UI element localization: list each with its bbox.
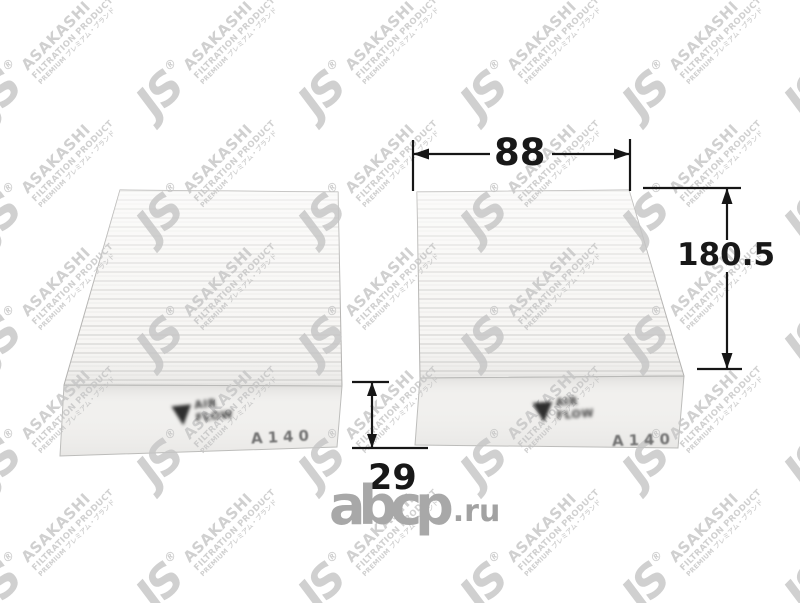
registered-mark-icon: ® bbox=[162, 55, 179, 75]
brand-watermark-tile: JS® ASAKASHI FILTRATION PRODUCT PREMIUM … bbox=[761, 204, 800, 388]
brand-tagline-2: PREMIUM プレミアム・ブランド bbox=[200, 495, 284, 579]
brand-tagline-2: PREMIUM プレミアム・ブランド bbox=[38, 3, 122, 87]
js-logo: JS® bbox=[0, 177, 34, 251]
js-logo: JS® bbox=[0, 300, 34, 374]
brand-tagline-2: PREMIUM プレミアム・ブランド bbox=[362, 126, 446, 210]
registered-mark-icon: ® bbox=[648, 178, 665, 198]
dimension-thickness-arrows bbox=[367, 382, 377, 448]
js-logo-text: JS bbox=[0, 182, 28, 253]
js-logo: JS® bbox=[0, 423, 34, 497]
js-logo: JS® bbox=[618, 54, 683, 128]
registered-mark-icon: ® bbox=[0, 547, 17, 567]
brand-tagline-1: FILTRATION PRODUCT bbox=[30, 488, 115, 573]
brand-watermark-tile: JS® ASAKASHI FILTRATION PRODUCT PREMIUM … bbox=[275, 204, 459, 388]
brand-tagline-1: FILTRATION PRODUCT bbox=[30, 365, 115, 450]
js-logo-text: JS bbox=[129, 428, 190, 499]
js-logo-text: JS bbox=[0, 305, 28, 376]
registered-mark-icon: ® bbox=[324, 424, 341, 444]
js-logo-text: JS bbox=[777, 59, 800, 130]
brand-tagline-2: PREMIUM プレミアム・ブランド bbox=[686, 372, 770, 456]
brand-tagline-1: FILTRATION PRODUCT bbox=[192, 119, 277, 204]
brand-text-block: ASAKASHI FILTRATION PRODUCT PREMIUM プレミア… bbox=[504, 229, 608, 333]
js-logo: JS® bbox=[780, 54, 800, 128]
brand-tagline-2: PREMIUM プレミアム・ブランド bbox=[200, 3, 284, 87]
js-logo-text: JS bbox=[291, 305, 352, 376]
air-flow-arrow-icon: ▼ bbox=[171, 400, 194, 428]
brand-tagline-1: FILTRATION PRODUCT bbox=[678, 488, 763, 573]
brand-tagline-2: PREMIUM プレミアム・ブランド bbox=[38, 372, 122, 456]
brand-tagline-2: PREMIUM プレミアム・ブランド bbox=[38, 126, 122, 210]
brand-watermark-tile: JS® ASAKASHI FILTRATION PRODUCT PREMIUM … bbox=[113, 450, 297, 603]
js-logo-text: JS bbox=[777, 182, 800, 253]
js-logo-text: JS bbox=[0, 428, 28, 499]
brand-watermark-tile: JS® ASAKASHI FILTRATION PRODUCT PREMIUM … bbox=[0, 327, 135, 511]
brand-text-block: ASAKASHI FILTRATION PRODUCT PREMIUM プレミア… bbox=[666, 0, 770, 87]
js-logo: JS® bbox=[456, 177, 521, 251]
brand-name: ASAKASHI bbox=[342, 229, 433, 320]
js-logo: JS® bbox=[132, 54, 197, 128]
brand-tagline-2: PREMIUM プレミアム・ブランド bbox=[524, 495, 608, 579]
brand-tagline-1: FILTRATION PRODUCT bbox=[516, 0, 601, 81]
brand-name: ASAKASHI bbox=[666, 352, 757, 443]
site-watermark: abcp .ru bbox=[329, 482, 500, 531]
brand-tagline-1: FILTRATION PRODUCT bbox=[678, 119, 763, 204]
brand-name: ASAKASHI bbox=[18, 229, 109, 320]
brand-name: ASAKASHI bbox=[504, 0, 595, 74]
brand-watermark-tile: JS® ASAKASHI FILTRATION PRODUCT PREMIUM … bbox=[599, 327, 783, 511]
air-flow-label: AIR FLOW bbox=[555, 393, 613, 422]
brand-tagline-1: FILTRATION PRODUCT bbox=[30, 0, 115, 81]
registered-mark-icon: ® bbox=[0, 178, 17, 198]
brand-tagline-2: PREMIUM プレミアム・ブランド bbox=[362, 372, 446, 456]
brand-name: ASAKASHI bbox=[18, 106, 109, 197]
brand-text-block: ASAKASHI FILTRATION PRODUCT PREMIUM プレミア… bbox=[18, 106, 122, 210]
registered-mark-icon: ® bbox=[324, 301, 341, 321]
brand-name: ASAKASHI bbox=[342, 0, 433, 74]
js-logo-text: JS bbox=[291, 182, 352, 253]
brand-name: ASAKASHI bbox=[180, 0, 271, 74]
js-logo: JS® bbox=[780, 546, 800, 603]
site-watermark-tld: .ru bbox=[453, 497, 501, 527]
registered-mark-icon: ® bbox=[486, 424, 503, 444]
brand-text-block: ASAKASHI FILTRATION PRODUCT PREMIUM プレミア… bbox=[342, 229, 446, 333]
brand-tagline-1: FILTRATION PRODUCT bbox=[354, 365, 439, 450]
brand-watermark-tile: JS® ASAKASHI FILTRATION PRODUCT PREMIUM … bbox=[113, 81, 297, 265]
registered-mark-icon: ® bbox=[324, 55, 341, 75]
brand-tagline-2: PREMIUM プレミアム・ブランド bbox=[38, 495, 122, 579]
registered-mark-icon: ® bbox=[324, 547, 341, 567]
js-logo-text: JS bbox=[129, 182, 190, 253]
js-logo: JS® bbox=[0, 546, 34, 603]
js-logo: JS® bbox=[618, 177, 683, 251]
brand-text-block: ASAKASHI FILTRATION PRODUCT PREMIUM プレミア… bbox=[18, 229, 122, 333]
site-watermark-logo: abcp bbox=[329, 482, 447, 531]
brand-text-block: ASAKASHI FILTRATION PRODUCT PREMIUM プレミア… bbox=[342, 352, 446, 456]
left-filter-part-code: A140 bbox=[251, 426, 315, 447]
brand-tagline-1: FILTRATION PRODUCT bbox=[678, 0, 763, 81]
brand-tagline-1: FILTRATION PRODUCT bbox=[354, 119, 439, 204]
brand-watermark-tile: JS® ASAKASHI FILTRATION PRODUCT PREMIUM … bbox=[761, 327, 800, 511]
js-logo-text: JS bbox=[777, 428, 800, 499]
js-logo: JS® bbox=[456, 54, 521, 128]
js-logo-text: JS bbox=[615, 182, 676, 253]
js-logo: JS® bbox=[132, 423, 197, 497]
js-logo-text: JS bbox=[129, 59, 190, 130]
js-logo: JS® bbox=[780, 177, 800, 251]
js-logo: JS® bbox=[456, 300, 521, 374]
brand-name: ASAKASHI bbox=[18, 352, 109, 443]
brand-tagline-1: FILTRATION PRODUCT bbox=[516, 242, 601, 327]
registered-mark-icon: ® bbox=[486, 301, 503, 321]
js-logo: JS® bbox=[294, 54, 359, 128]
registered-mark-icon: ® bbox=[648, 301, 665, 321]
brand-tagline-1: FILTRATION PRODUCT bbox=[516, 488, 601, 573]
js-logo: JS® bbox=[294, 546, 359, 603]
brand-text-block: ASAKASHI FILTRATION PRODUCT PREMIUM プレミア… bbox=[180, 106, 284, 210]
brand-tagline-2: PREMIUM プレミアム・ブランド bbox=[200, 249, 284, 333]
js-logo-text: JS bbox=[129, 551, 190, 603]
brand-text-block: ASAKASHI FILTRATION PRODUCT PREMIUM プレミア… bbox=[180, 229, 284, 333]
registered-mark-icon: ® bbox=[486, 55, 503, 75]
js-logo-text: JS bbox=[291, 551, 352, 603]
brand-watermark-tile: JS® ASAKASHI FILTRATION PRODUCT PREMIUM … bbox=[599, 450, 783, 603]
brand-tagline-1: FILTRATION PRODUCT bbox=[192, 488, 277, 573]
brand-name: ASAKASHI bbox=[666, 106, 757, 197]
brand-text-block: ASAKASHI FILTRATION PRODUCT PREMIUM プレミア… bbox=[342, 106, 446, 210]
brand-tagline-2: PREMIUM プレミアム・ブランド bbox=[200, 126, 284, 210]
dimension-thickness-lines bbox=[352, 382, 428, 448]
js-logo-text: JS bbox=[453, 551, 514, 603]
brand-watermark-tile: JS® ASAKASHI FILTRATION PRODUCT PREMIUM … bbox=[113, 204, 297, 388]
brand-text-block: ASAKASHI FILTRATION PRODUCT PREMIUM プレミア… bbox=[18, 475, 122, 579]
brand-name: ASAKASHI bbox=[504, 475, 595, 566]
js-logo: JS® bbox=[0, 54, 34, 128]
registered-mark-icon: ® bbox=[0, 424, 17, 444]
dimension-height-lines bbox=[643, 188, 742, 369]
brand-text-block: ASAKASHI FILTRATION PRODUCT PREMIUM プレミア… bbox=[18, 0, 122, 87]
brand-text-block: ASAKASHI FILTRATION PRODUCT PREMIUM プレミア… bbox=[180, 0, 284, 87]
brand-watermark-tile: JS® ASAKASHI FILTRATION PRODUCT PREMIUM … bbox=[113, 0, 297, 142]
brand-tagline-2: PREMIUM プレミアム・ブランド bbox=[686, 3, 770, 87]
js-logo-text: JS bbox=[777, 551, 800, 603]
brand-tagline-2: PREMIUM プレミアム・ブランド bbox=[362, 3, 446, 87]
brand-tagline-2: PREMIUM プレミアム・ブランド bbox=[524, 249, 608, 333]
js-logo-text: JS bbox=[615, 305, 676, 376]
registered-mark-icon: ® bbox=[0, 301, 17, 321]
js-logo-text: JS bbox=[453, 182, 514, 253]
registered-mark-icon: ® bbox=[648, 55, 665, 75]
brand-name: ASAKASHI bbox=[180, 475, 271, 566]
js-logo: JS® bbox=[780, 423, 800, 497]
js-logo-text: JS bbox=[129, 305, 190, 376]
js-logo: JS® bbox=[456, 546, 521, 603]
brand-text-block: ASAKASHI FILTRATION PRODUCT PREMIUM プレミア… bbox=[504, 0, 608, 87]
brand-tagline-1: FILTRATION PRODUCT bbox=[30, 242, 115, 327]
brand-watermark-tile: JS® ASAKASHI FILTRATION PRODUCT PREMIUM … bbox=[0, 450, 135, 603]
js-logo: JS® bbox=[294, 300, 359, 374]
brand-tagline-1: FILTRATION PRODUCT bbox=[192, 242, 277, 327]
brand-text-block: ASAKASHI FILTRATION PRODUCT PREMIUM プレミア… bbox=[342, 0, 446, 87]
brand-name: ASAKASHI bbox=[18, 0, 109, 74]
registered-mark-icon: ® bbox=[162, 301, 179, 321]
air-flow-arrow-icon: ▼ bbox=[532, 397, 554, 424]
brand-name: ASAKASHI bbox=[342, 106, 433, 197]
registered-mark-icon: ® bbox=[486, 547, 503, 567]
dimension-height-arrows bbox=[722, 188, 733, 369]
brand-name: ASAKASHI bbox=[180, 106, 271, 197]
brand-watermark-tile: JS® ASAKASHI FILTRATION PRODUCT PREMIUM … bbox=[761, 450, 800, 603]
js-logo-text: JS bbox=[0, 59, 28, 130]
left-filter-airflow-stamp: ▼ AIR FLOW bbox=[171, 394, 252, 428]
registered-mark-icon: ® bbox=[648, 547, 665, 567]
brand-tagline-2: PREMIUM プレミアム・ブランド bbox=[524, 3, 608, 87]
brand-tagline-1: FILTRATION PRODUCT bbox=[30, 119, 115, 204]
brand-text-block: ASAKASHI FILTRATION PRODUCT PREMIUM プレミア… bbox=[666, 352, 770, 456]
dimension-width-label: 88 bbox=[494, 134, 546, 171]
left-filter-pleated-face bbox=[64, 190, 342, 386]
registered-mark-icon: ® bbox=[324, 178, 341, 198]
brand-watermark-tile: JS® ASAKASHI FILTRATION PRODUCT PREMIUM … bbox=[275, 81, 459, 265]
brand-tagline-2: PREMIUM プレミアム・ブランド bbox=[38, 249, 122, 333]
js-logo: JS® bbox=[618, 546, 683, 603]
js-logo-text: JS bbox=[615, 59, 676, 130]
dimension-height-label: 180.5 bbox=[677, 240, 775, 271]
brand-name: ASAKASHI bbox=[18, 475, 109, 566]
brand-tagline-1: FILTRATION PRODUCT bbox=[192, 0, 277, 81]
js-logo: JS® bbox=[618, 300, 683, 374]
brand-watermark-tile: JS® ASAKASHI FILTRATION PRODUCT PREMIUM … bbox=[599, 0, 783, 142]
registered-mark-icon: ® bbox=[162, 178, 179, 198]
brand-name: ASAKASHI bbox=[342, 352, 433, 443]
brand-name: ASAKASHI bbox=[666, 0, 757, 74]
brand-name: ASAKASHI bbox=[504, 229, 595, 320]
air-flow-label: AIR FLOW bbox=[194, 394, 252, 425]
brand-watermark-tile: JS® ASAKASHI FILTRATION PRODUCT PREMIUM … bbox=[0, 204, 135, 388]
right-filter-part-code: A140 bbox=[612, 430, 676, 450]
js-logo: JS® bbox=[780, 300, 800, 374]
brand-tagline-1: FILTRATION PRODUCT bbox=[354, 0, 439, 81]
registered-mark-icon: ® bbox=[486, 178, 503, 198]
registered-mark-icon: ® bbox=[0, 55, 17, 75]
brand-text-block: ASAKASHI FILTRATION PRODUCT PREMIUM プレミア… bbox=[666, 475, 770, 579]
js-logo: JS® bbox=[132, 546, 197, 603]
brand-tagline-1: FILTRATION PRODUCT bbox=[678, 365, 763, 450]
js-logo-text: JS bbox=[615, 551, 676, 603]
brand-tagline-2: PREMIUM プレミアム・ブランド bbox=[362, 249, 446, 333]
js-logo: JS® bbox=[294, 177, 359, 251]
right-filter-pleated-face bbox=[417, 190, 684, 378]
brand-text-block: ASAKASHI FILTRATION PRODUCT PREMIUM プレミア… bbox=[504, 475, 608, 579]
js-logo: JS® bbox=[132, 177, 197, 251]
registered-mark-icon: ® bbox=[162, 547, 179, 567]
brand-watermark-tile: JS® ASAKASHI FILTRATION PRODUCT PREMIUM … bbox=[0, 0, 135, 142]
brand-tagline-2: PREMIUM プレミアム・ブランド bbox=[686, 126, 770, 210]
brand-watermark-tile: JS® ASAKASHI FILTRATION PRODUCT PREMIUM … bbox=[275, 0, 459, 142]
js-logo-text: JS bbox=[453, 59, 514, 130]
brand-name: ASAKASHI bbox=[180, 229, 271, 320]
brand-text-block: ASAKASHI FILTRATION PRODUCT PREMIUM プレミア… bbox=[180, 475, 284, 579]
js-logo: JS® bbox=[132, 300, 197, 374]
js-logo-text: JS bbox=[0, 551, 28, 603]
brand-text-block: ASAKASHI FILTRATION PRODUCT PREMIUM プレミア… bbox=[18, 352, 122, 456]
brand-tagline-1: FILTRATION PRODUCT bbox=[354, 242, 439, 327]
brand-watermark-tile: JS® ASAKASHI FILTRATION PRODUCT PREMIUM … bbox=[599, 204, 783, 388]
js-logo-text: JS bbox=[777, 305, 800, 376]
brand-watermark-tile: JS® ASAKASHI FILTRATION PRODUCT PREMIUM … bbox=[0, 81, 135, 265]
brand-text-block: ASAKASHI FILTRATION PRODUCT PREMIUM プレミア… bbox=[666, 106, 770, 210]
brand-watermark-tile: JS® ASAKASHI FILTRATION PRODUCT PREMIUM … bbox=[437, 0, 621, 142]
brand-watermark-tile: JS® ASAKASHI FILTRATION PRODUCT PREMIUM … bbox=[761, 0, 800, 142]
brand-name: ASAKASHI bbox=[666, 475, 757, 566]
brand-watermark-tile: JS® ASAKASHI FILTRATION PRODUCT PREMIUM … bbox=[437, 204, 621, 388]
js-logo-text: JS bbox=[291, 59, 352, 130]
brand-tagline-2: PREMIUM プレミアム・ブランド bbox=[686, 495, 770, 579]
right-filter-airflow-stamp: ▼ AIR FLOW bbox=[532, 393, 613, 424]
product-photo: JS® ASAKASHI FILTRATION PRODUCT PREMIUM … bbox=[0, 0, 800, 603]
js-logo-text: JS bbox=[453, 305, 514, 376]
